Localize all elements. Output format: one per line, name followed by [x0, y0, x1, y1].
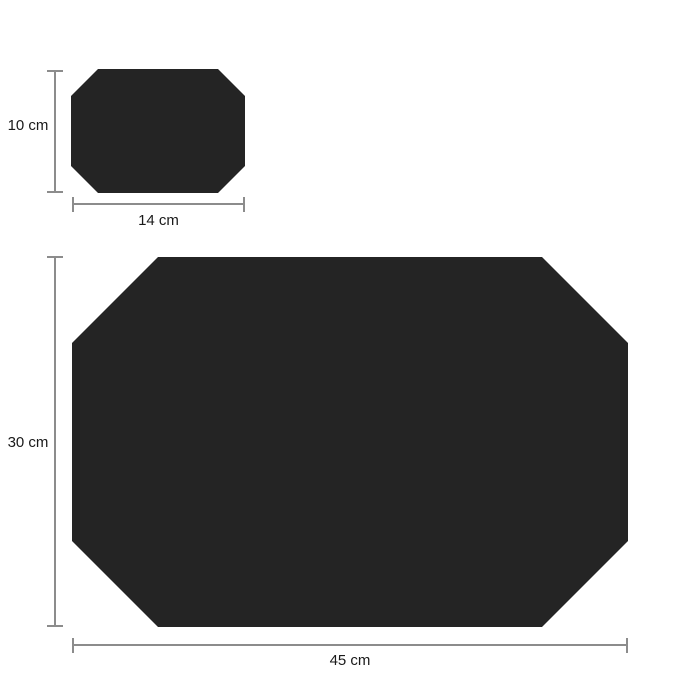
- large-height-dimension-line: [54, 256, 56, 627]
- small-height-dimension-line: [54, 70, 56, 193]
- small-octagon-shape: [71, 69, 245, 193]
- small-width-dimension-line: [72, 203, 245, 205]
- product-dimension-diagram: 10 cm 14 cm 30 cm 45 cm: [0, 0, 700, 700]
- large-octagon-shape: [72, 257, 628, 627]
- large-width-label: 45 cm: [72, 652, 628, 670]
- small-width-label: 14 cm: [72, 212, 245, 230]
- small-height-label: 10 cm: [4, 117, 52, 135]
- large-height-label: 30 cm: [4, 434, 52, 452]
- large-width-dimension-line: [72, 644, 628, 646]
